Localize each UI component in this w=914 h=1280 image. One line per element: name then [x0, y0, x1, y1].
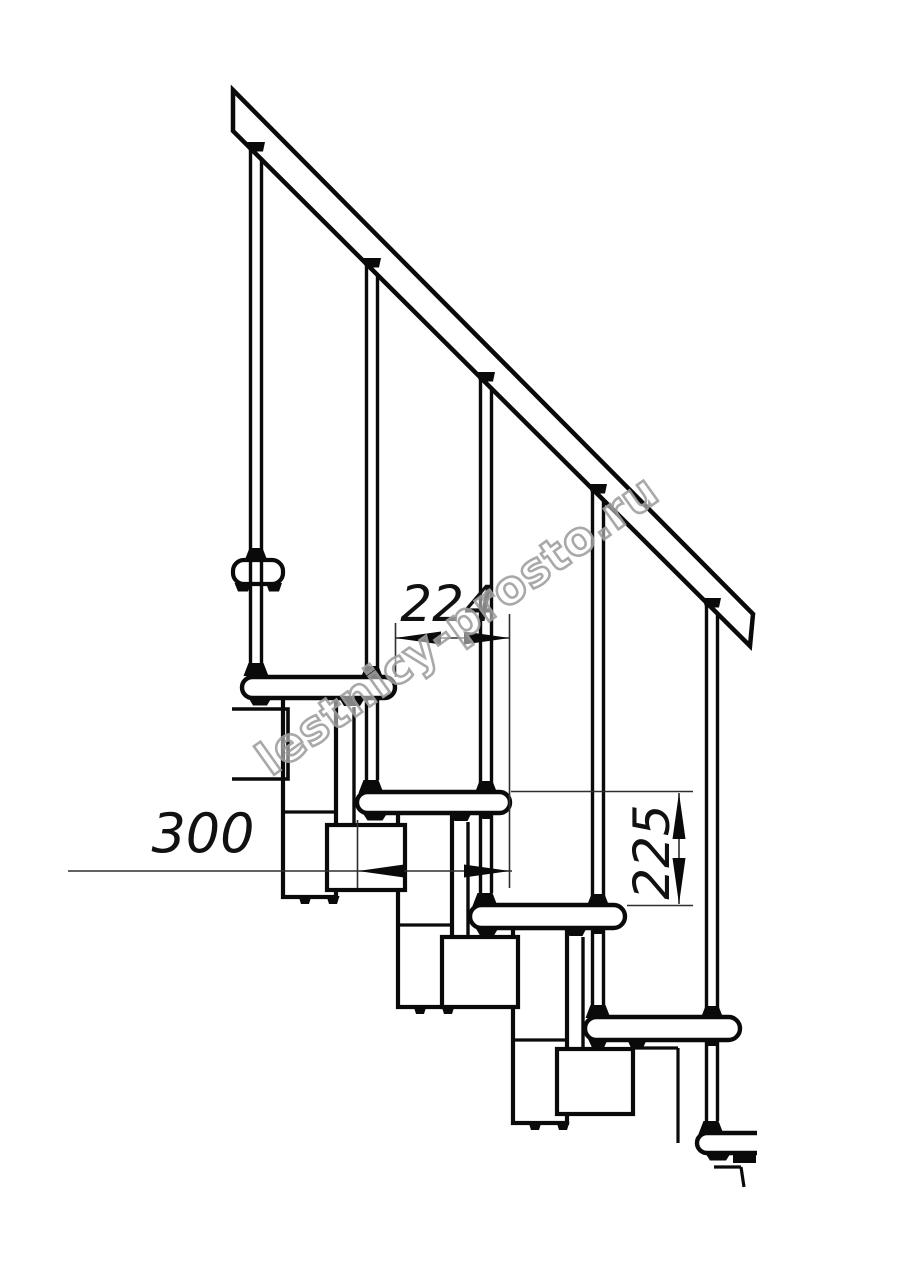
fastener-clamp [701, 1006, 723, 1018]
dimension-arrowhead [464, 865, 510, 878]
fastener-clamp [248, 697, 272, 706]
fastener-clamp [529, 1122, 542, 1130]
fastener-plate [733, 1154, 756, 1163]
tread [470, 905, 625, 928]
fastener-clamp [475, 781, 497, 793]
dimension-label-rise: 225 [623, 804, 681, 899]
fastener-clamp [588, 1039, 608, 1048]
fastener-clamp [266, 583, 282, 592]
tread-cut-off [697, 1133, 757, 1153]
fastener-clamp [473, 893, 498, 906]
dimension-label-tread-depth: 300 [151, 802, 254, 865]
stringer-module-square [557, 1049, 633, 1114]
stringer-module-square [442, 937, 518, 1007]
drawing-canvas: 224 300 225 lestnicy-prosto.ru [0, 0, 914, 1280]
fastener-clamp [586, 1005, 611, 1018]
fastener-clamp [414, 1006, 427, 1014]
fastener-clamp [699, 1121, 724, 1134]
fastener-clamp [362, 812, 388, 821]
fastener-clamp [442, 1006, 455, 1014]
fastener-clamp [363, 258, 381, 268]
fastener-clamp [587, 894, 609, 906]
fastener-clamp [327, 896, 340, 904]
tread [585, 1017, 740, 1040]
fastener-clamp [245, 548, 267, 560]
tread [357, 792, 510, 813]
fastener-clamp [557, 1122, 570, 1130]
fastener-clamp [703, 598, 721, 608]
stringer-module-square [327, 825, 405, 890]
fastener-clamp [705, 1152, 732, 1161]
landing-bracket [233, 560, 283, 584]
staircase-side-view-drawing: 224 300 225 lestnicy-prosto.ru [0, 0, 914, 1280]
fastener-clamp [299, 896, 312, 904]
fastener-clamp [244, 663, 269, 676]
fastener-clamp [477, 372, 495, 382]
drawing-cut-line [741, 1167, 744, 1187]
fastener-clamp [247, 142, 265, 152]
fastener-clamp [359, 780, 384, 793]
fastener-clamp [475, 927, 499, 936]
